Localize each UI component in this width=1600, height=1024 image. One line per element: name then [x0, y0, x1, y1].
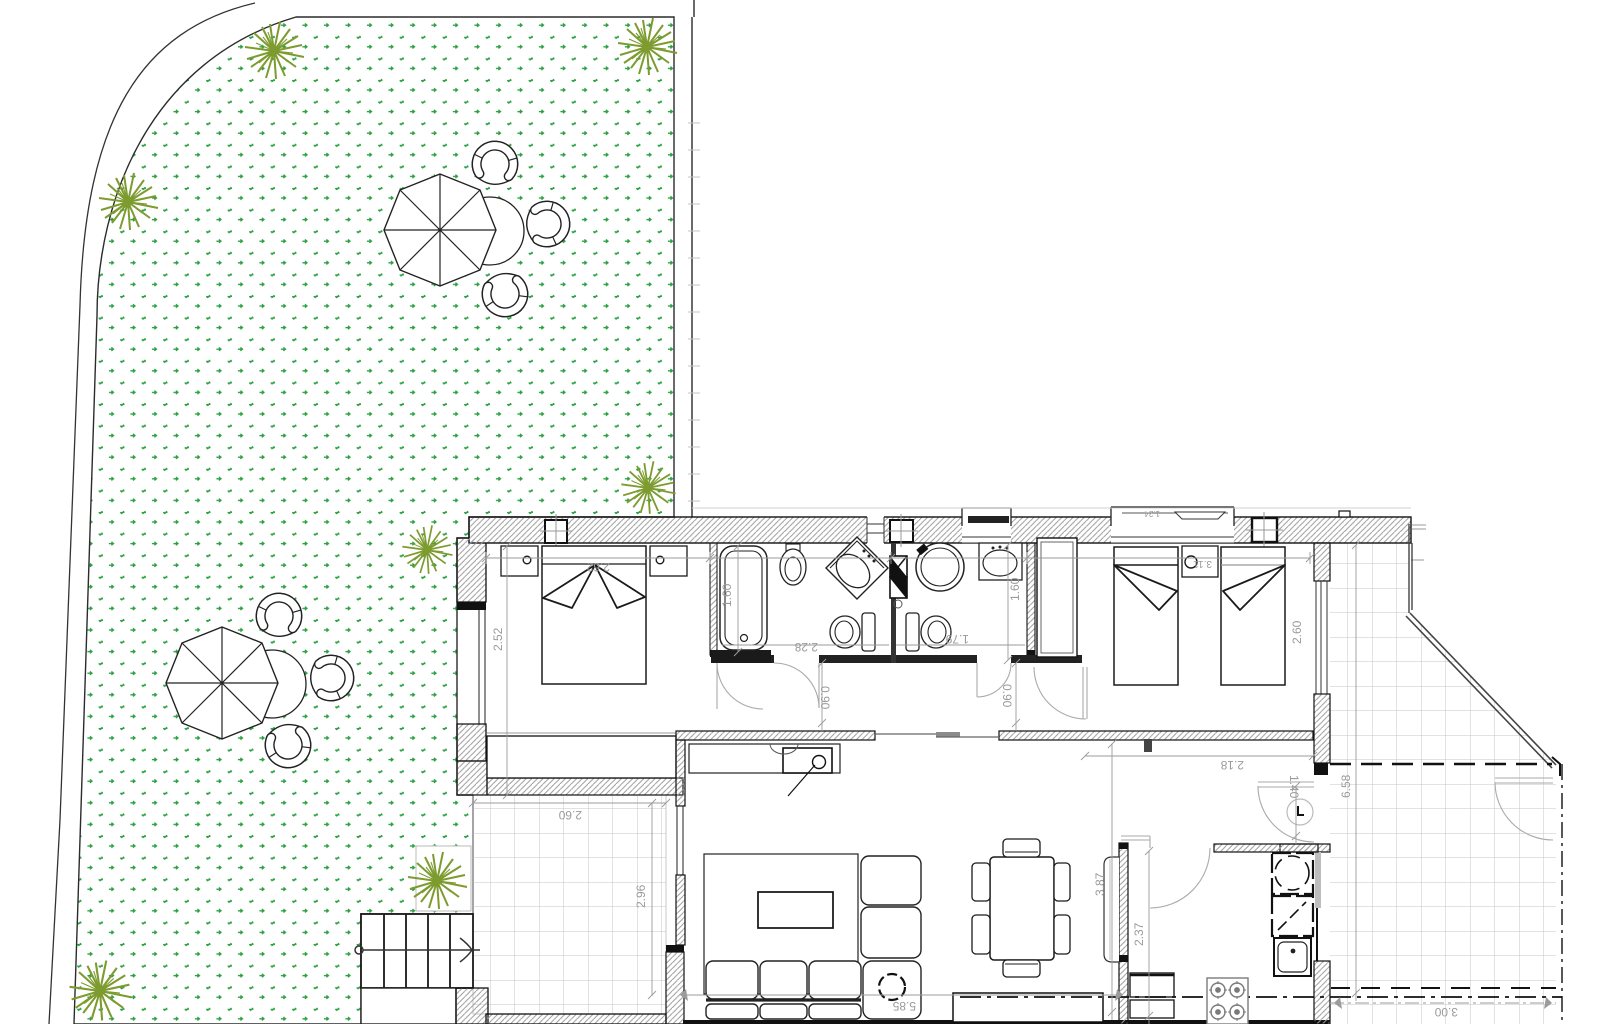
svg-text:2.96: 2.96: [634, 884, 648, 908]
svg-text:3.00: 3.00: [1434, 1005, 1458, 1019]
svg-text:1.60: 1.60: [1008, 577, 1022, 601]
svg-text:2.37: 2.37: [1132, 922, 1146, 946]
svg-text:5.85: 5.85: [892, 999, 916, 1013]
svg-text:0.90: 0.90: [818, 686, 832, 710]
svg-text:1.24: 1.24: [1144, 509, 1160, 518]
svg-text:6.58: 6.58: [1339, 774, 1353, 798]
svg-text:2.52: 2.52: [491, 627, 505, 651]
svg-text:0.90: 0.90: [1000, 684, 1014, 708]
svg-text:3.87: 3.87: [1093, 872, 1107, 896]
svg-text:2.60: 2.60: [558, 808, 582, 822]
svg-text:1.40: 1.40: [1287, 775, 1301, 799]
svg-text:3.11: 3.11: [1193, 558, 1212, 569]
svg-text:2.62: 2.62: [586, 560, 610, 574]
svg-text:1.79: 1.79: [945, 632, 969, 646]
svg-text:2.18: 2.18: [1220, 758, 1244, 772]
svg-text:2.28: 2.28: [794, 640, 818, 654]
svg-text:1.60: 1.60: [720, 583, 734, 607]
svg-text:2.60: 2.60: [1290, 620, 1304, 644]
